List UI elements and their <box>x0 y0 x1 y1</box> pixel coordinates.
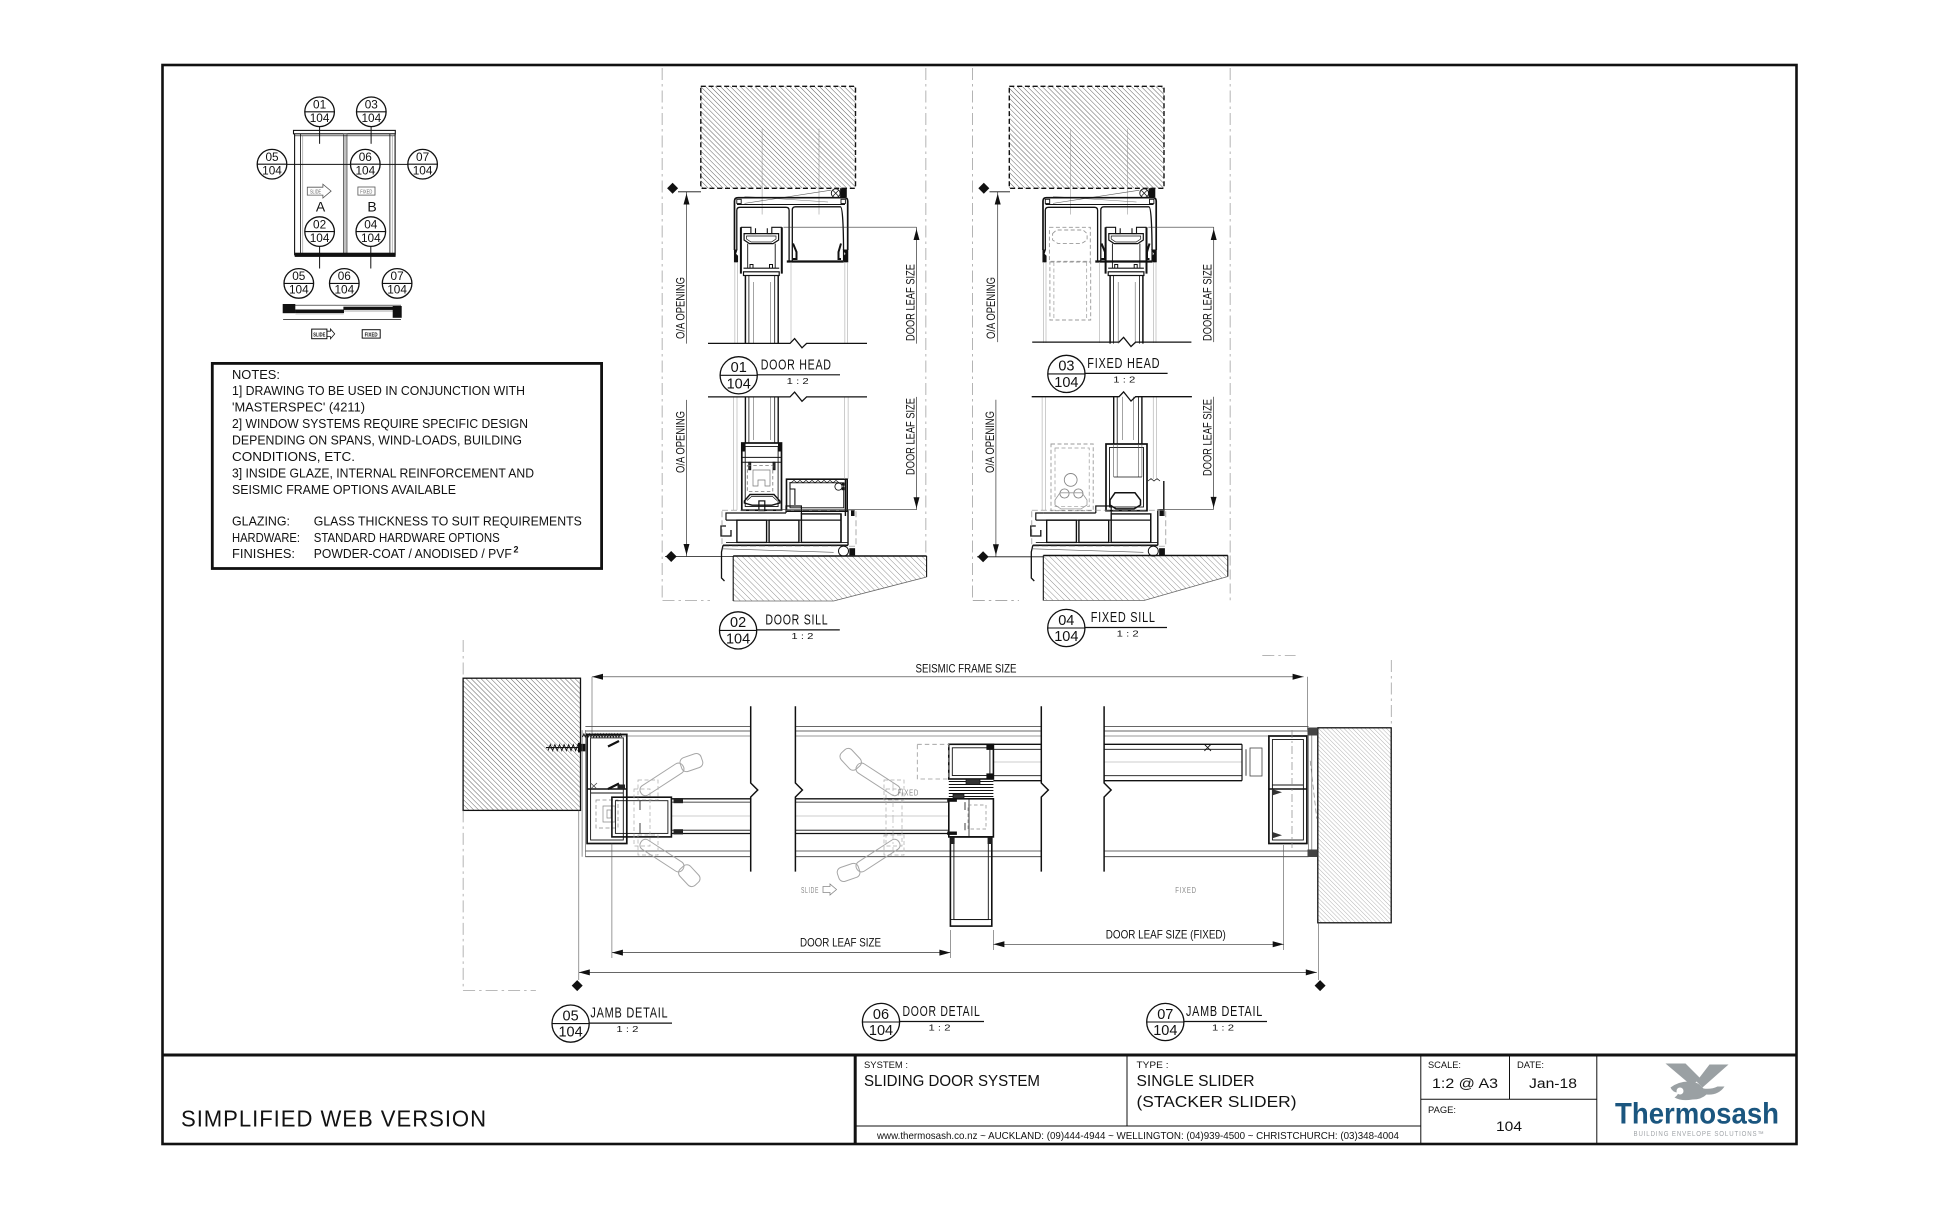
svg-text:04: 04 <box>364 217 378 231</box>
svg-text:FINISHES:: FINISHES: <box>232 546 295 561</box>
svg-text:2] WINDOW SYSTEMS REQUIRE SPEC: 2] WINDOW SYSTEMS REQUIRE SPECIFIC DESIG… <box>232 416 528 431</box>
svg-text:SLIDE: SLIDE <box>310 190 321 196</box>
svg-text:1 : 2: 1 : 2 <box>1117 629 1139 639</box>
svg-text:SYSTEM :: SYSTEM : <box>864 1060 908 1071</box>
svg-text:104: 104 <box>726 631 750 647</box>
svg-text:1] DRAWING TO BE USED IN CONJU: 1] DRAWING TO BE USED IN CONJUNCTION WIT… <box>232 383 525 398</box>
svg-text:SIMPLIFIED WEB VERSION: SIMPLIFIED WEB VERSION <box>181 1105 487 1131</box>
svg-text:SEISMIC FRAME OPTIONS AVAILABL: SEISMIC FRAME OPTIONS AVAILABLE <box>232 482 456 497</box>
svg-text:1 : 2: 1 : 2 <box>929 1023 951 1033</box>
svg-text:DOOR LEAF SIZE: DOOR LEAF SIZE <box>1201 399 1215 476</box>
svg-text:POWDER-COAT / ANODISED / PVF: POWDER-COAT / ANODISED / PVF <box>314 546 512 561</box>
svg-text:DOOR DETAIL: DOOR DETAIL <box>903 1004 981 1020</box>
svg-text:06: 06 <box>338 269 352 283</box>
svg-text:Jan-18: Jan-18 <box>1529 1076 1577 1091</box>
svg-text:06: 06 <box>359 150 373 164</box>
svg-text:www.thermosash.co.nz ~ AUC: www.thermosash.co.nz ~ AUCKLAND: (09)444… <box>876 1130 1399 1142</box>
svg-text:(STACKER SLIDER): (STACKER SLIDER) <box>1137 1094 1297 1111</box>
svg-text:104: 104 <box>727 376 751 392</box>
svg-text:104: 104 <box>361 231 381 245</box>
svg-text:104: 104 <box>289 283 309 297</box>
svg-text:1 : 2: 1 : 2 <box>787 376 809 386</box>
svg-text:01: 01 <box>731 360 747 376</box>
svg-text:07: 07 <box>416 150 429 164</box>
svg-text:DOOR HEAD: DOOR HEAD <box>761 357 832 373</box>
svg-text:SINGLE SLIDER: SINGLE SLIDER <box>1137 1073 1255 1090</box>
svg-text:BUILDING ENVELOPE SOLUTIONS™: BUILDING ENVELOPE SOLUTIONS™ <box>1634 1131 1765 1138</box>
svg-text:104: 104 <box>387 283 407 297</box>
svg-text:3] INSIDE GLAZE, INTERNAL REIN: 3] INSIDE GLAZE, INTERNAL REINFORCEMENT … <box>232 466 534 481</box>
svg-text:SEISMIC FRAME SIZE: SEISMIC FRAME SIZE <box>916 662 1017 676</box>
svg-text:01: 01 <box>313 98 326 112</box>
svg-text:104: 104 <box>361 111 381 125</box>
svg-text:B: B <box>367 199 376 215</box>
svg-text:FIXED HEAD: FIXED HEAD <box>1087 356 1160 372</box>
svg-text:2: 2 <box>514 545 519 555</box>
svg-text:04: 04 <box>1058 613 1074 629</box>
svg-text:07: 07 <box>1157 1007 1173 1023</box>
svg-text:DOOR LEAF SIZE: DOOR LEAF SIZE <box>800 936 881 950</box>
svg-text:02: 02 <box>313 217 326 231</box>
svg-text:104: 104 <box>1496 1119 1523 1134</box>
svg-text:05: 05 <box>563 1008 579 1024</box>
svg-text:104: 104 <box>1054 375 1078 391</box>
svg-text:05: 05 <box>265 150 279 164</box>
svg-text:104: 104 <box>1153 1023 1177 1039</box>
svg-text:FIXED: FIXED <box>360 190 372 196</box>
svg-text:DATE:: DATE: <box>1517 1060 1544 1071</box>
svg-text:DEPENDING ON SPANS, WIND-LOADS: DEPENDING ON SPANS, WIND-LOADS, BUILDING <box>232 433 522 448</box>
svg-text:SCALE:: SCALE: <box>1428 1060 1461 1071</box>
svg-text:O/A OPENING: O/A OPENING <box>983 411 997 473</box>
svg-text:1 : 2: 1 : 2 <box>1212 1023 1234 1033</box>
svg-text:104: 104 <box>355 164 375 178</box>
svg-text:Thermosash: Thermosash <box>1615 1098 1779 1131</box>
svg-text:FIXED: FIXED <box>365 332 378 338</box>
svg-text:SLIDE: SLIDE <box>801 886 819 895</box>
svg-text:FIXED: FIXED <box>898 789 920 798</box>
svg-text:1 : 2: 1 : 2 <box>616 1024 638 1034</box>
svg-text:CONDITIONS, ETC.: CONDITIONS, ETC. <box>232 449 355 464</box>
svg-text:05: 05 <box>292 269 306 283</box>
svg-text:104: 104 <box>310 111 330 125</box>
svg-text:06: 06 <box>873 1007 889 1023</box>
svg-text:SLIDE: SLIDE <box>313 333 325 339</box>
svg-text:1 : 2: 1 : 2 <box>1113 375 1135 385</box>
svg-text:SLIDING DOOR SYSTEM: SLIDING DOOR SYSTEM <box>864 1073 1040 1090</box>
svg-text:104: 104 <box>869 1023 893 1039</box>
svg-text:HARDWARE:: HARDWARE: <box>232 530 300 545</box>
svg-text:104: 104 <box>558 1025 582 1041</box>
svg-text:FIXED SILL: FIXED SILL <box>1091 610 1156 626</box>
svg-text:DOOR LEAF SIZE: DOOR LEAF SIZE <box>904 264 918 341</box>
svg-text:104: 104 <box>334 283 354 297</box>
svg-text:DOOR LEAF SIZE (FIXED): DOOR LEAF SIZE (FIXED) <box>1106 928 1226 942</box>
svg-text:A: A <box>316 199 326 215</box>
svg-text:JAMB DETAIL: JAMB DETAIL <box>1186 1004 1263 1020</box>
svg-text:DOOR LEAF SIZE: DOOR LEAF SIZE <box>1201 264 1215 341</box>
svg-text:1 : 2: 1 : 2 <box>791 631 813 641</box>
svg-text:104: 104 <box>310 231 330 245</box>
svg-text:1:2 @ A3: 1:2 @ A3 <box>1432 1076 1498 1091</box>
svg-text:TYPE :: TYPE : <box>1137 1060 1169 1071</box>
svg-text:104: 104 <box>413 164 433 178</box>
svg-text:O/A OPENING: O/A OPENING <box>984 277 998 339</box>
svg-text:NOTES:: NOTES: <box>232 367 280 382</box>
svg-text:JAMB DETAIL: JAMB DETAIL <box>590 1006 668 1022</box>
svg-text:PAGE:: PAGE: <box>1428 1105 1456 1116</box>
svg-text:104: 104 <box>1054 629 1078 645</box>
svg-text:02: 02 <box>730 615 746 631</box>
svg-text:03: 03 <box>365 98 379 112</box>
svg-text:GLAZING:: GLAZING: <box>232 514 290 529</box>
svg-text:07: 07 <box>391 269 404 283</box>
svg-text:DOOR LEAF SIZE: DOOR LEAF SIZE <box>904 398 918 475</box>
svg-text:FIXED: FIXED <box>1175 886 1197 895</box>
svg-text:STANDARD HARDWARE OPTIONS: STANDARD HARDWARE OPTIONS <box>314 530 500 545</box>
svg-text:O/A OPENING: O/A OPENING <box>674 277 688 339</box>
svg-text:'MASTERSPEC' (4211): 'MASTERSPEC' (4211) <box>232 400 365 415</box>
svg-text:O/A OPENING: O/A OPENING <box>674 411 688 473</box>
svg-text:03: 03 <box>1058 359 1074 375</box>
svg-text:104: 104 <box>262 164 282 178</box>
svg-text:GLASS THICKNESS TO SUIT REQUIR: GLASS THICKNESS TO SUIT REQUIREMENTS <box>314 514 582 529</box>
svg-text:DOOR SILL: DOOR SILL <box>765 612 828 628</box>
